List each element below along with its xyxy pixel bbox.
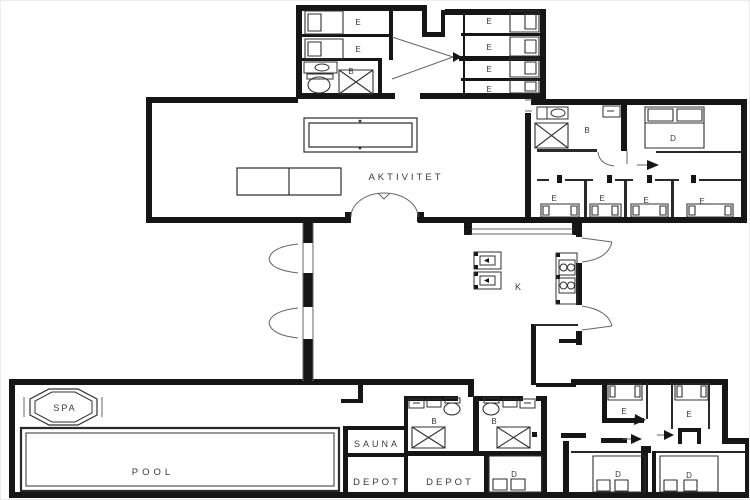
floor-plan-drawing: AKTIVITET K SPA POOL SAUNA DEPOT DEPOT B… xyxy=(1,1,750,500)
dining-table-icon xyxy=(237,168,341,195)
label-double-0: D xyxy=(670,134,676,143)
label-activity-room: AKTIVITET xyxy=(368,172,443,183)
sink-basin-icon xyxy=(551,109,565,117)
toilet-icon xyxy=(444,403,460,415)
label-single-9: E xyxy=(699,197,704,206)
sink-basin-icon xyxy=(315,64,329,71)
label-single-0: E xyxy=(355,18,360,27)
label-single-1: E xyxy=(355,45,360,54)
stove-burner xyxy=(560,282,567,289)
stove-burner xyxy=(560,264,567,271)
label-depot-1: DEPOT xyxy=(426,477,474,488)
label-depot-0: DEPOT xyxy=(353,477,401,488)
exterior-walls xyxy=(9,5,750,498)
stove-burner xyxy=(568,264,575,271)
interior-walls xyxy=(534,149,745,453)
label-double-2: D xyxy=(615,470,621,479)
billiard-mark xyxy=(359,120,362,123)
label-single-4: E xyxy=(486,65,491,74)
appliance-arrow-icon xyxy=(484,278,489,283)
label-sauna: SAUNA xyxy=(354,439,400,449)
entrance-arrow-icon xyxy=(647,160,659,170)
label-bath-1: B xyxy=(584,126,589,135)
kitchen-appliance-icons xyxy=(474,252,577,304)
stove-burner xyxy=(568,282,575,289)
label-bath-3: B xyxy=(491,417,496,426)
billiard-mark xyxy=(359,147,362,150)
label-single-10: E xyxy=(621,407,626,416)
floor-plan-canvas: AKTIVITET K SPA POOL SAUNA DEPOT DEPOT B… xyxy=(0,0,750,500)
label-bath-2: B xyxy=(431,417,436,426)
label-single-8: E xyxy=(643,196,648,205)
label-bath-0: B xyxy=(348,67,353,76)
entrance-arrow-icon xyxy=(664,430,674,440)
shower-icons xyxy=(339,70,568,448)
label-double-1: D xyxy=(511,470,517,479)
entrance-arrow-icon xyxy=(634,414,646,425)
label-single-11: E xyxy=(686,410,691,419)
pool-inner-edge xyxy=(26,433,334,486)
label-kitchen: K xyxy=(515,282,521,292)
label-spa: SPA xyxy=(53,403,76,413)
label-single-6: E xyxy=(551,194,556,203)
appliance-arrow-icon xyxy=(484,258,489,263)
label-single-5: E xyxy=(486,85,491,94)
bed-icons xyxy=(305,11,733,492)
entrance-arrow-icon xyxy=(631,434,642,444)
label-double-3: D xyxy=(686,471,692,480)
pool-icon xyxy=(21,428,339,491)
toilet-icon xyxy=(483,403,499,415)
label-single-2: E xyxy=(486,17,491,26)
label-single-3: E xyxy=(486,43,491,52)
label-pool: POOL xyxy=(132,467,174,478)
label-single-7: E xyxy=(599,194,604,203)
